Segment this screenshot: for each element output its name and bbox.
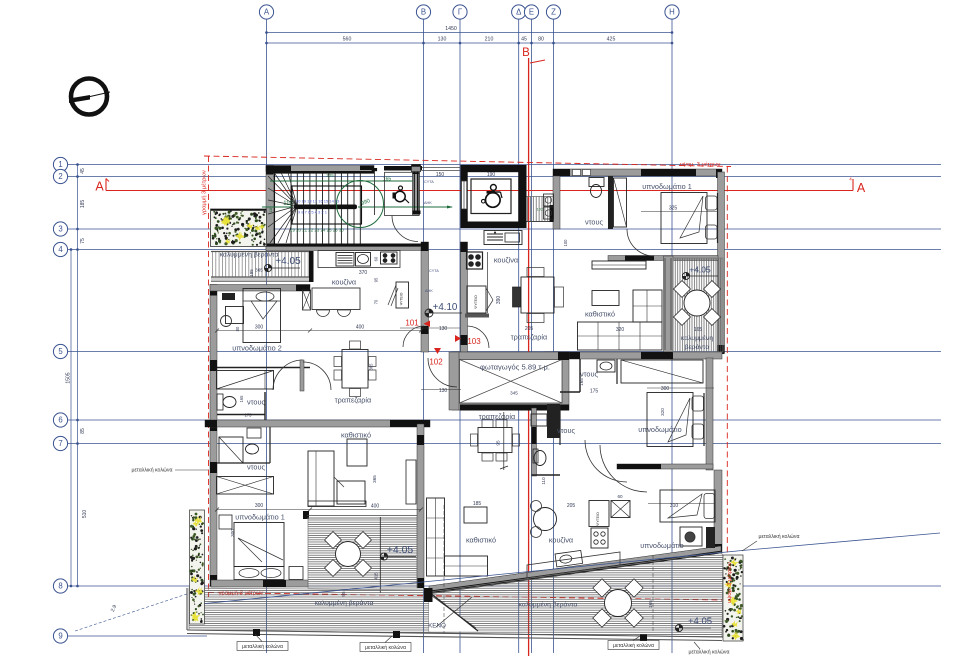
svg-text:345: 345: [510, 391, 518, 396]
svg-text:130: 130: [439, 326, 448, 332]
svg-text:1: 1: [58, 160, 62, 169]
svg-text:8: 8: [58, 582, 62, 591]
svg-text:CYTA: CYTA: [429, 269, 439, 273]
svg-text:390: 390: [496, 296, 502, 305]
svg-text:10Σ: 10Σ: [537, 207, 544, 212]
svg-text:185: 185: [473, 501, 482, 507]
svg-text:μεταλλική κολώνα: μεταλλική κολώνα: [688, 649, 729, 656]
svg-text:E: E: [529, 8, 534, 17]
svg-text:1505: 1505: [66, 372, 72, 383]
svg-text:110: 110: [541, 477, 546, 485]
svg-text:365: 365: [369, 363, 374, 371]
svg-text:20 19 18 17 16 15 14 13: 20 19 18 17 16 15 14 13: [296, 199, 340, 204]
svg-text:18: 18: [268, 207, 273, 212]
svg-text:A: A: [264, 8, 270, 17]
svg-text:5: 5: [58, 347, 63, 356]
svg-text:υψομ. 3 μέτρων: υψομ. 3 μέτρων: [680, 161, 721, 168]
svg-text:+4.05: +4.05: [688, 616, 712, 627]
svg-text:ντους: ντους: [247, 463, 265, 472]
svg-text:205: 205: [567, 503, 576, 509]
svg-text:CYTA: CYTA: [424, 180, 434, 184]
svg-text:310: 310: [670, 503, 679, 509]
svg-text:ΑΗΚ: ΑΗΚ: [424, 201, 432, 205]
svg-text:185: 185: [249, 269, 254, 277]
svg-text:130: 130: [438, 37, 447, 43]
svg-text:165: 165: [239, 395, 244, 403]
svg-text:3: 3: [58, 225, 62, 234]
svg-text:Δ: Δ: [516, 8, 521, 17]
svg-text:ντους: ντους: [585, 218, 603, 227]
svg-text:φωταγωγός 5.89 τ.μ.: φωταγωγός 5.89 τ.μ.: [480, 363, 550, 372]
svg-text:ΨΥΓΕΙΟ: ΨΥΓΕΙΟ: [596, 512, 600, 526]
svg-text:6: 6: [58, 416, 62, 425]
svg-text:365: 365: [255, 268, 263, 273]
svg-text:υπνοδωμάτιο 1: υπνοδωμάτιο 1: [642, 182, 692, 191]
svg-text:μεταλλική κολώνα: μεταλλική κολώνα: [365, 644, 406, 651]
svg-text:2.9: 2.9: [110, 604, 118, 613]
svg-text:560: 560: [343, 37, 352, 43]
svg-text:300: 300: [255, 325, 264, 331]
svg-text:κουζίνα: κουζίνα: [332, 278, 357, 287]
svg-text:υπνοδωμάτιο 1: υπνοδωμάτιο 1: [235, 513, 285, 522]
svg-text:45: 45: [521, 37, 527, 43]
svg-text:υπνοδωμάτιο 2: υπνοδωμάτιο 2: [232, 344, 282, 353]
svg-text:510: 510: [82, 510, 88, 519]
svg-text:103: 103: [467, 337, 481, 346]
svg-text:τραπεζαρία: τραπεζαρία: [479, 412, 516, 421]
svg-text:415: 415: [374, 572, 379, 580]
svg-text:Γ: Γ: [458, 8, 463, 17]
svg-text:ντους: ντους: [557, 426, 575, 435]
svg-text:2: 2: [58, 172, 62, 181]
svg-text:320: 320: [616, 327, 625, 333]
svg-text:95: 95: [496, 440, 501, 446]
svg-text:101: 101: [405, 319, 419, 328]
svg-text:300: 300: [661, 386, 670, 392]
svg-text:ΑΗΚ: ΑΗΚ: [425, 289, 433, 293]
svg-text:205: 205: [525, 326, 534, 332]
svg-text:185: 185: [80, 200, 86, 209]
svg-text:ΚΕΝΟ: ΚΕΝΟ: [428, 623, 446, 630]
svg-text:μεταλλική κολώνα: μεταλλική κολώνα: [613, 642, 654, 649]
svg-text:80: 80: [538, 37, 544, 43]
svg-text:210: 210: [485, 37, 494, 43]
svg-text:75: 75: [80, 238, 86, 244]
svg-text:καλυμμένη βεράντα: καλυμμένη βεράντα: [519, 601, 578, 609]
svg-text:60: 60: [374, 256, 379, 261]
svg-text:165: 165: [579, 378, 584, 386]
svg-text:110: 110: [283, 201, 293, 207]
svg-text:85: 85: [80, 428, 86, 434]
svg-text:κουζίνα: κουζίνα: [494, 256, 519, 265]
svg-text:175: 175: [590, 389, 599, 395]
svg-text:19 20 21 22 23 24 25 26 30: 19 20 21 22 23 24 25 26 30: [290, 228, 344, 233]
svg-text:B: B: [421, 8, 426, 17]
svg-text:70: 70: [374, 299, 379, 304]
svg-text:καθιστικό: καθιστικό: [585, 310, 615, 319]
svg-text:95: 95: [374, 277, 379, 282]
svg-text:καθιστικό: καθιστικό: [466, 536, 496, 545]
svg-text:ΨΥΓΕΙΟ: ΨΥΓΕΙΟ: [474, 295, 478, 309]
svg-text:190: 190: [487, 172, 496, 178]
svg-text:υπνοδωμάτιο: υπνοδωμάτιο: [640, 541, 683, 550]
svg-text:9 8 7 6 5 4 3 2 1: 9 8 7 6 5 4 3 2 1: [298, 210, 328, 215]
svg-text:καλυμμένη βεράντα: καλυμμένη βεράντα: [220, 251, 279, 259]
svg-text:A: A: [95, 180, 104, 194]
svg-text:80: 80: [235, 326, 240, 331]
svg-text:Z: Z: [551, 8, 556, 17]
svg-text:καθιστικό: καθιστικό: [341, 431, 371, 440]
svg-text:102: 102: [429, 358, 443, 367]
svg-text:υπνοδωμάτιο: υπνοδωμάτιο: [638, 425, 681, 434]
svg-text:μεταλλική κολώνα: μεταλλική κολώνα: [131, 467, 172, 474]
svg-text:ΨΥΓΕΙΟ: ΨΥΓΕΙΟ: [400, 292, 404, 305]
svg-text:300: 300: [255, 503, 264, 509]
svg-text:225: 225: [326, 173, 334, 178]
svg-text:καλυμμένη: καλυμμένη: [681, 334, 713, 342]
svg-text:150: 150: [436, 172, 445, 178]
svg-text:μεταλλική κολώνα: μεταλλική κολώνα: [242, 643, 283, 650]
svg-text:υψομ. 3 μέτρων: υψομ. 3 μέτρων: [726, 562, 733, 603]
svg-text:γραμμή 3 μέτρων: γραμμή 3 μέτρων: [201, 170, 208, 215]
svg-text:+4.05: +4.05: [387, 544, 414, 556]
svg-text:4: 4: [849, 177, 852, 182]
svg-text:1450: 1450: [445, 26, 457, 32]
svg-text:320: 320: [660, 408, 665, 416]
svg-text:100: 100: [563, 239, 568, 247]
svg-text:κουζίνα: κουζίνα: [549, 536, 574, 545]
svg-text:370: 370: [359, 270, 368, 276]
svg-text:60: 60: [617, 494, 623, 499]
svg-text:καλυμμένη βεράντα: καλυμμένη βεράντα: [315, 599, 374, 607]
svg-text:165: 165: [648, 600, 653, 608]
svg-text:+4.10: +4.10: [433, 302, 458, 313]
svg-text:425: 425: [607, 37, 616, 43]
svg-text:ντους: ντους: [580, 370, 598, 379]
svg-text:4: 4: [58, 245, 63, 254]
svg-text:365: 365: [372, 475, 377, 483]
svg-text:400: 400: [371, 504, 380, 510]
svg-text:τραπεζαρία: τραπεζαρία: [511, 333, 548, 342]
svg-text:H: H: [669, 8, 675, 17]
svg-text:ντους: ντους: [247, 398, 265, 407]
svg-text:A: A: [857, 181, 866, 195]
svg-text:130: 130: [439, 388, 448, 394]
svg-text:325: 325: [669, 206, 678, 212]
svg-text:400: 400: [356, 325, 365, 331]
svg-text:45: 45: [80, 168, 86, 174]
svg-text:B: B: [522, 47, 530, 59]
svg-text:+4.05: +4.05: [689, 265, 711, 275]
svg-text:βεράντα: βεράντα: [685, 343, 710, 351]
svg-text:+4.05: +4.05: [275, 256, 301, 267]
svg-text:9: 9: [58, 632, 62, 641]
svg-text:95: 95: [341, 591, 346, 597]
svg-text:τραπεζαρία: τραπεζαρία: [335, 396, 372, 405]
svg-text:165: 165: [694, 327, 703, 333]
svg-text:μεταλλική κολώνα: μεταλλική κολώνα: [758, 533, 799, 540]
svg-text:7: 7: [58, 439, 62, 448]
